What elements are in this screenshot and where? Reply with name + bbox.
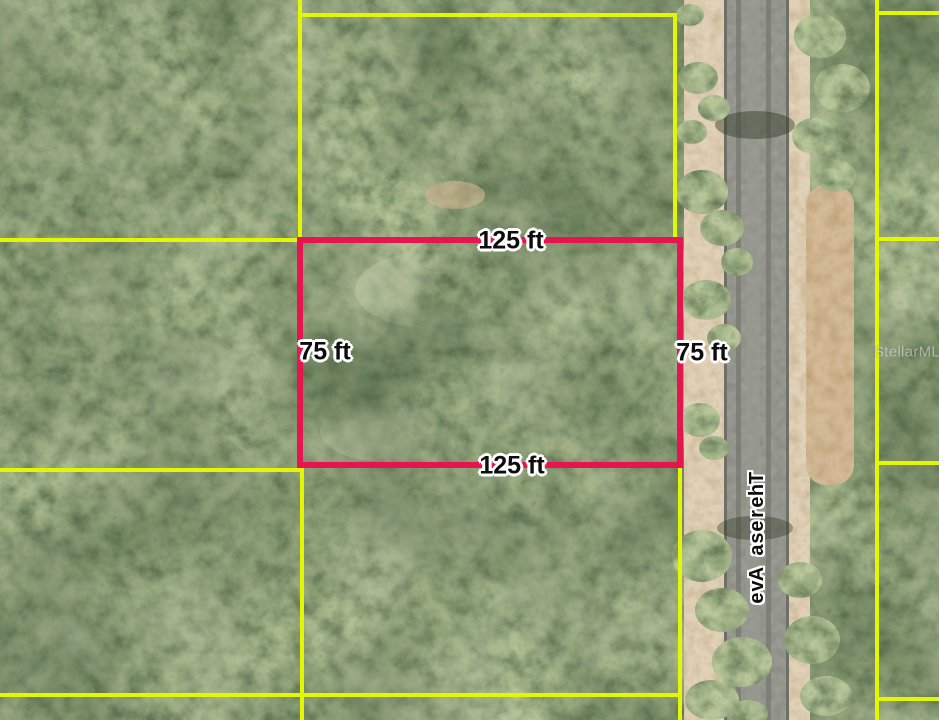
lot-width-label-top: 125 ft (478, 227, 543, 256)
parcel-line-west-mid (0, 238, 302, 242)
lot-depth-label-left: 75 ft (299, 338, 350, 367)
parcel-line-east-bottom (877, 697, 939, 701)
lot-width-label-bottom: 125 ft (479, 452, 544, 481)
aerial-map: 125 ft 125 ft 75 ft 75 ft Theresa Ave St… (0, 0, 939, 720)
lot-outline (297, 237, 683, 468)
parcel-line-left-lower (300, 465, 304, 720)
parcel-line-right-upper (673, 13, 677, 240)
lot-depth-label-right: 75 ft (676, 339, 727, 368)
parcel-line-east-mid1 (875, 237, 939, 241)
parcel-line-east-top (875, 11, 939, 15)
parcel-line-west-lower (0, 468, 302, 472)
parcel-line-east-mid2 (875, 461, 939, 465)
parcel-line-right-lower (678, 465, 682, 720)
parcel-line-bottom (0, 693, 682, 697)
dirt-patch (806, 185, 854, 485)
parcel-line-left-upper (298, 0, 302, 242)
parcel-line-top (298, 13, 677, 17)
watermark: StellarMLS (874, 344, 939, 361)
street-name-label: Theresa Ave (744, 472, 770, 604)
